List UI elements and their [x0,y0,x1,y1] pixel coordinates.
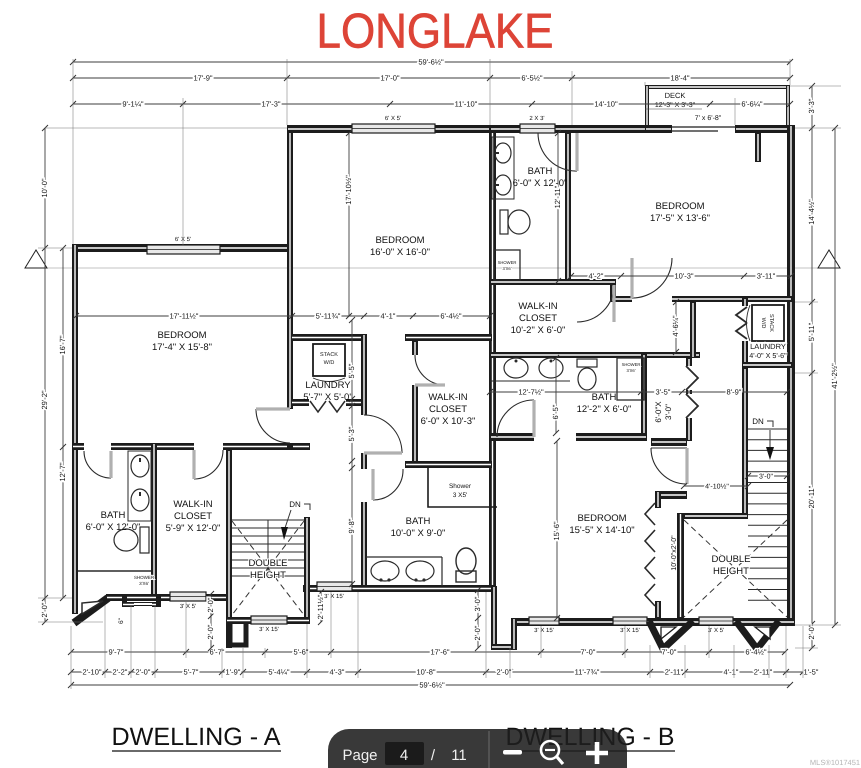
svg-text:DOUBLE: DOUBLE [711,554,750,565]
svg-text:15'-5" X 14'-10": 15'-5" X 14'-10" [569,525,634,536]
svg-text:3' X 15': 3' X 15' [259,626,279,633]
svg-text:3'-0": 3'-0" [473,596,482,611]
svg-text:10'-2" X 6'-0": 10'-2" X 6'-0" [511,325,566,336]
svg-text:59'-6½": 59'-6½" [419,681,445,690]
svg-text:9'-8": 9'-8" [347,518,356,533]
svg-text:8'-9": 8'-9" [727,388,742,397]
svg-text:WALK-IN: WALK-IN [518,301,557,312]
svg-text:2'-11": 2'-11" [754,668,773,677]
svg-text:3'-3": 3'-3" [807,98,816,113]
svg-text:SHOWER: SHOWER [134,575,155,580]
svg-text:3'-0": 3'-0" [759,474,773,481]
svg-text:3'-5": 3'-5" [656,388,671,397]
svg-text:18'-4": 18'-4" [670,74,689,83]
svg-text:BEDROOM: BEDROOM [157,330,206,341]
svg-text:SHOWER: SHOWER [622,362,641,367]
svg-text:3' X 5': 3' X 5' [708,627,724,634]
svg-text:2'-11": 2'-11" [665,668,684,677]
svg-text:10'-0"x2'-0": 10'-0"x2'-0" [671,535,678,571]
svg-text:DN: DN [289,500,301,509]
svg-text:4'-1": 4'-1" [724,668,739,677]
svg-text:WALK-IN: WALK-IN [173,499,212,510]
svg-text:DECK: DECK [665,91,686,100]
svg-text:29'-2": 29'-2" [40,390,49,409]
svg-text:17'-9": 17'-9" [193,74,212,83]
svg-text:LAUNDRY: LAUNDRY [305,380,351,391]
svg-text:3 X5': 3 X5' [453,492,468,499]
svg-text:11'-7¾": 11'-7¾" [575,668,600,677]
svg-text:11'-10": 11'-10" [455,100,478,109]
svg-text:6'-0" X 10'-3": 6'-0" X 10'-3" [421,416,476,427]
svg-text:5'-11¾": 5'-11¾" [316,312,341,321]
svg-text:6'-0" X 12'-0": 6'-0" X 12'-0" [86,522,141,533]
svg-text:3'-0": 3'-0" [664,404,673,420]
svg-text:W/D: W/D [760,318,766,329]
svg-text:DWELLING - A: DWELLING - A [112,723,281,751]
svg-text:17'-5" X 13'-6": 17'-5" X 13'-6" [650,213,710,224]
svg-text:BEDROOM: BEDROOM [577,513,626,524]
svg-text:2'-0": 2'-0" [206,597,215,612]
svg-text:2'-0": 2'-0" [497,668,512,677]
svg-text:12'-3" X 3'-3": 12'-3" X 3'-3" [655,102,696,109]
svg-text:4: 4 [400,747,408,764]
svg-text:3'X6': 3'X6' [626,368,635,373]
svg-text:3' X 15': 3' X 15' [620,627,640,634]
svg-text:BATH: BATH [592,392,617,403]
svg-text:2'-11½": 2'-11½" [316,594,325,619]
svg-text:41'-2½": 41'-2½" [830,363,839,389]
svg-text:6": 6" [118,617,125,624]
svg-text:10'-0" X 9'-0": 10'-0" X 9'-0" [391,528,446,539]
svg-text:9'-1¼": 9'-1¼" [122,100,144,109]
svg-text:5'-11": 5'-11" [807,322,816,341]
svg-text:12'-11": 12'-11" [553,185,562,208]
svg-text:BATH: BATH [406,516,431,527]
svg-text:HEIGHT: HEIGHT [713,566,749,577]
svg-text:4'-1": 4'-1" [381,312,396,321]
svg-text:6' X 5': 6' X 5' [385,115,401,122]
svg-text:6'-4½": 6'-4½" [745,648,767,657]
svg-text:6'-5½": 6'-5½" [521,74,543,83]
svg-text:1'-9": 1'-9" [226,668,241,677]
svg-text:17'-4" X 15'-8": 17'-4" X 15'-8" [152,342,212,353]
svg-text:2'-2": 2'-2" [113,668,128,677]
svg-text:7'-0": 7'-0" [662,648,677,657]
svg-text:DOUBLE: DOUBLE [248,558,287,569]
svg-text:10'-0": 10'-0" [40,178,49,197]
svg-text:5'-7" X 5'-0": 5'-7" X 5'-0" [303,392,352,403]
svg-text:3'X6': 3'X6' [139,581,149,586]
svg-text:17'-0": 17'-0" [380,74,399,83]
svg-text:CLOSET: CLOSET [429,404,467,415]
svg-text:17'-11½": 17'-11½" [170,312,199,321]
svg-text:BATH: BATH [101,510,126,521]
svg-text:5'-6": 5'-6" [294,648,309,657]
svg-text:4'-6¼": 4'-6¼" [671,315,680,337]
svg-text:3' X 15': 3' X 15' [534,627,554,634]
svg-text:17'-6": 17'-6" [430,648,449,657]
svg-text:4'-10½": 4'-10½" [705,484,729,491]
svg-text:14'-4½": 14'-4½" [807,199,816,225]
svg-text:6'-7": 6'-7" [210,648,225,657]
svg-text:BEDROOM: BEDROOM [655,201,704,212]
svg-text:12'-2" X 6'-0": 12'-2" X 6'-0" [577,404,632,415]
svg-text:3'-11": 3'-11" [757,272,776,281]
svg-text:5'-4¼": 5'-4¼" [268,668,290,677]
svg-text:5'-9" X 12'-0": 5'-9" X 12'-0" [166,523,221,534]
svg-text:Page: Page [342,747,377,764]
svg-text:SHOWER: SHOWER [498,260,517,265]
svg-text:9'-7": 9'-7" [109,648,124,657]
svg-text:2'-0": 2'-0" [473,625,482,640]
svg-text:BATH: BATH [528,166,553,177]
svg-text:20'-11": 20'-11" [807,485,816,508]
svg-text:WALK-IN: WALK-IN [428,392,467,403]
svg-text:STACK: STACK [768,314,774,332]
svg-text:2'-0": 2'-0" [136,668,151,677]
svg-text:6'-5": 6'-5" [551,404,560,419]
svg-text:7'-0": 7'-0" [581,648,596,657]
svg-text:CLOSET: CLOSET [519,313,557,324]
svg-text:5'-7": 5'-7" [184,668,199,677]
svg-text:2'-10": 2'-10" [82,668,101,677]
svg-text:11: 11 [451,747,467,764]
svg-text:HEIGHT: HEIGHT [250,570,286,581]
svg-text:2 X 3': 2 X 3' [529,115,544,122]
svg-text:5'-3": 5'-3" [347,426,356,441]
svg-text:CLOSET: CLOSET [174,511,212,522]
svg-text:17'-3": 17'-3" [261,100,280,109]
svg-text:6'-6¼": 6'-6¼" [741,100,763,109]
svg-text:17'-10½": 17'-10½" [344,175,353,205]
svg-text:3' X 5': 3' X 5' [180,603,196,610]
svg-text:6'-4½": 6'-4½" [440,312,462,321]
svg-text:5'-5": 5'-5" [347,363,356,378]
svg-text:15'-6": 15'-6" [552,521,561,540]
svg-text:12'-7": 12'-7" [58,462,67,481]
svg-text:2'-0": 2'-0" [206,624,215,639]
svg-text:4'-2": 4'-2" [589,272,604,281]
svg-text:59'-6½": 59'-6½" [418,58,444,67]
svg-text:1'-5": 1'-5" [804,668,819,677]
svg-text:10'-3": 10'-3" [674,272,693,281]
svg-text:16'-0" X 16'-0": 16'-0" X 16'-0" [370,247,430,258]
svg-text:16'-7": 16'-7" [58,335,67,354]
svg-text:12'-7½": 12'-7½" [518,388,544,397]
svg-text:2'-0": 2'-0" [40,602,49,617]
svg-text:10'-8": 10'-8" [416,668,435,677]
svg-text:4'-3": 4'-3" [330,668,345,677]
svg-text:STACK: STACK [320,352,338,358]
svg-text:LAUNDRY: LAUNDRY [750,342,786,351]
svg-text:LONGLAKE: LONGLAKE [317,5,554,59]
svg-text:MLS®1017451: MLS®1017451 [810,758,860,767]
svg-text:Shower: Shower [449,483,472,490]
svg-text:3' X 15': 3' X 15' [324,593,344,600]
svg-text:DN: DN [752,417,764,426]
svg-text:2'-0": 2'-0" [807,624,816,639]
svg-text:BEDROOM: BEDROOM [375,235,424,246]
svg-text:14'-10": 14'-10" [594,100,618,109]
svg-text:W/D: W/D [324,360,335,366]
svg-text:4'-0" X 5'-6": 4'-0" X 5'-6" [749,351,787,360]
svg-text:6'-0"X: 6'-0"X [654,401,663,423]
svg-text:3'X6': 3'X6' [502,266,511,271]
svg-text:7' x 6'-8": 7' x 6'-8" [695,115,722,122]
